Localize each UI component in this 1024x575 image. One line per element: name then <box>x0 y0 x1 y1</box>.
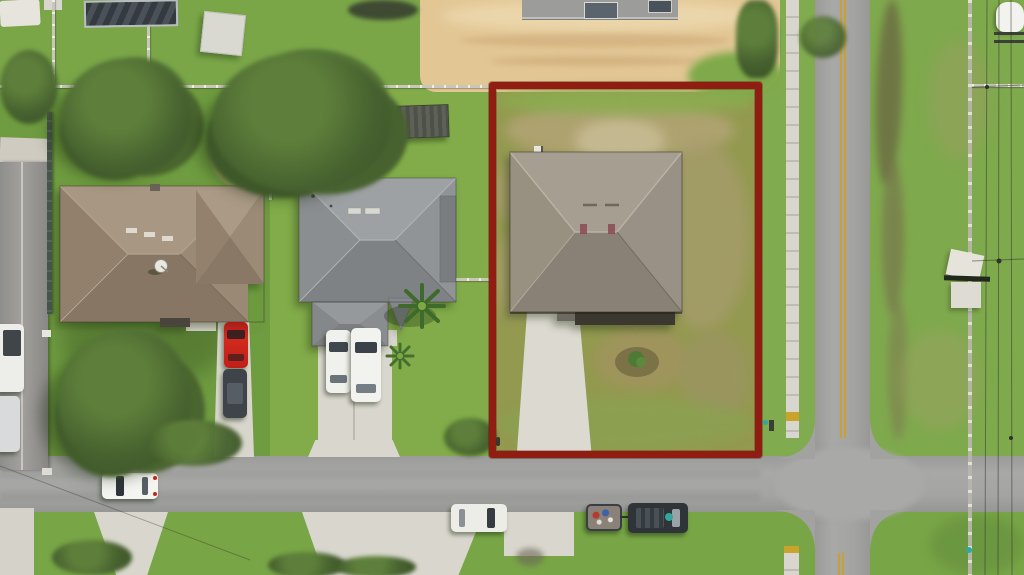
bottom-shrubs <box>336 556 416 575</box>
truck-bed <box>636 508 664 528</box>
windshield <box>355 342 377 353</box>
red-car <box>224 322 248 368</box>
edge-truck <box>0 324 24 392</box>
property-boundary <box>489 82 762 458</box>
rear-window <box>142 477 148 495</box>
taillight <box>153 492 157 496</box>
taillight <box>153 476 157 480</box>
rear-lanai <box>440 196 456 282</box>
rear-window <box>228 354 244 361</box>
bottom-shrubs <box>268 552 346 575</box>
roof-panel <box>227 383 243 404</box>
road-edge-tree <box>800 16 846 58</box>
bottom-shrubs <box>52 540 132 575</box>
white-car <box>326 330 351 393</box>
windshield <box>672 509 680 527</box>
intersection-flares <box>772 420 912 550</box>
oak-tree-large <box>212 52 392 192</box>
rear-window <box>459 509 465 527</box>
pickup-truck <box>628 503 688 533</box>
edge-car <box>0 396 20 452</box>
palm-tree-small <box>387 344 413 368</box>
aerial-photo <box>0 0 1024 575</box>
dark-car <box>223 369 247 418</box>
left-porch-shadow <box>160 318 190 327</box>
rear-window <box>330 375 347 383</box>
windshield <box>227 330 245 339</box>
teal-cargo <box>665 513 673 521</box>
windshield <box>487 508 495 528</box>
edge-tree <box>0 50 58 124</box>
windshield <box>329 342 348 352</box>
utility-trailer <box>586 504 622 531</box>
white-suv <box>351 328 381 402</box>
street-overhang-tree <box>146 420 242 466</box>
truck-bed <box>3 330 21 356</box>
parked-suv <box>451 504 507 532</box>
rear-window <box>356 384 376 393</box>
oak-tree <box>62 58 192 176</box>
hedge-bushes <box>736 0 778 78</box>
